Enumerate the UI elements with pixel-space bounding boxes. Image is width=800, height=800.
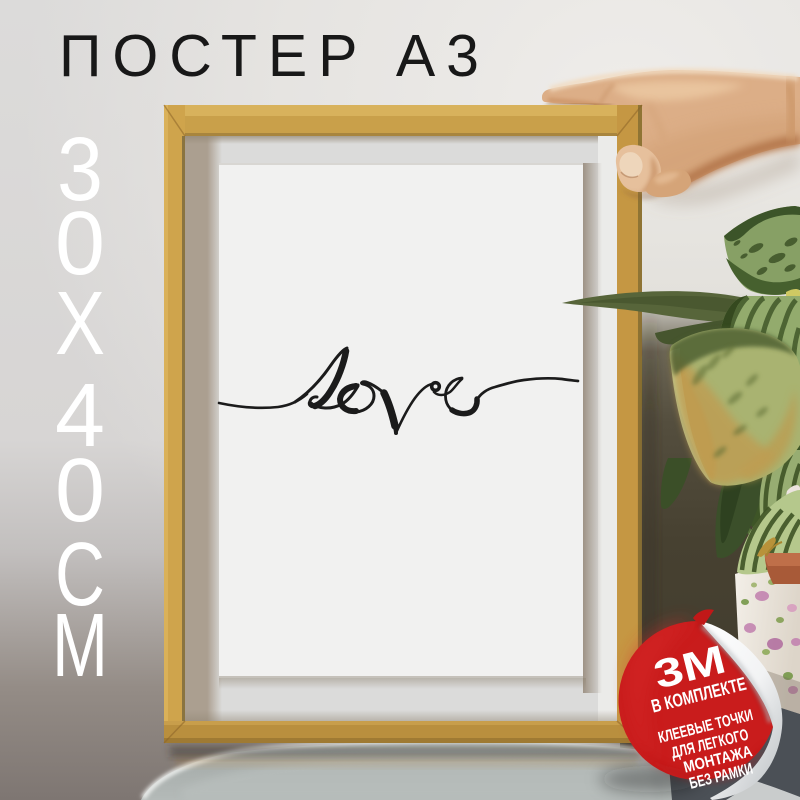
svg-text:Х: Х [55,274,105,374]
svg-text:ПОСТЕР А3: ПОСТЕР А3 [59,23,489,89]
svg-text:М: М [52,596,108,696]
